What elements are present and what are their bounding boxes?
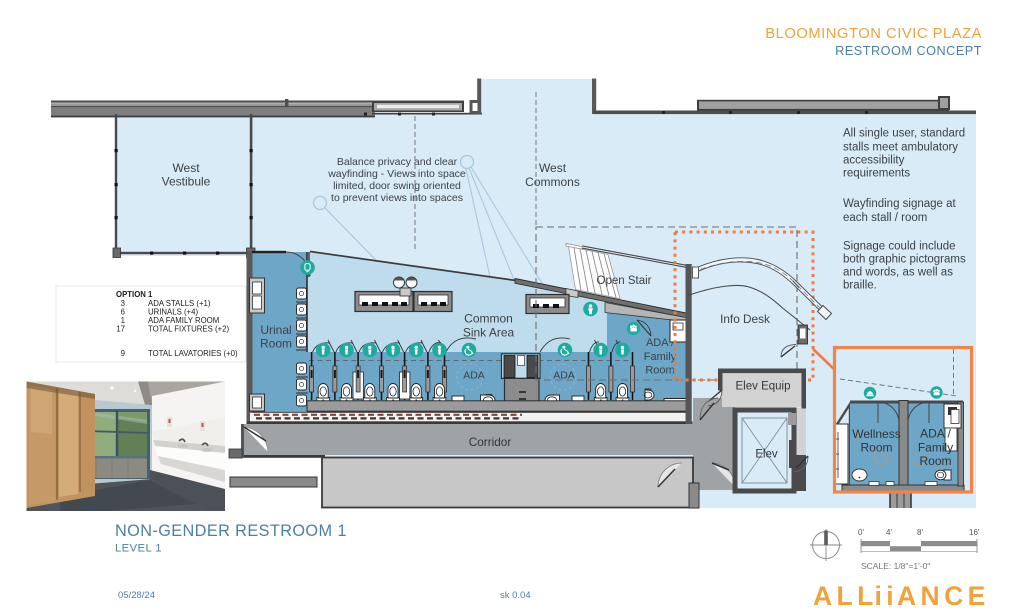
svg-text:requirements: requirements	[843, 168, 910, 180]
svg-text:8': 8'	[917, 528, 923, 537]
svg-text:Room: Room	[860, 441, 892, 455]
svg-text:West: West	[172, 161, 200, 175]
svg-text:limited, door swing oriented: limited, door swing oriented	[333, 180, 461, 192]
svg-text:All single user, standard: All single user, standard	[843, 128, 965, 140]
svg-text:4': 4'	[886, 528, 892, 537]
svg-text:Info Desk: Info Desk	[720, 312, 770, 326]
svg-text:Open Stair: Open Stair	[597, 275, 652, 287]
svg-text:ADA: ADA	[463, 370, 485, 382]
svg-text:sk 0.04: sk 0.04	[500, 590, 531, 601]
svg-text:West: West	[539, 161, 567, 175]
svg-text:both graphic pictograms: both graphic pictograms	[843, 254, 966, 266]
svg-text:to prevent views into spaces: to prevent views into spaces	[331, 192, 463, 204]
svg-text:wayfinding - Views into space: wayfinding - Views into space	[327, 168, 466, 180]
svg-text:Family: Family	[644, 351, 677, 363]
svg-text:Commons: Commons	[525, 175, 580, 189]
svg-text:Family: Family	[918, 441, 953, 455]
svg-text:ADA /: ADA /	[920, 427, 951, 441]
svg-text:0': 0'	[858, 528, 864, 537]
svg-text:Corridor: Corridor	[469, 435, 512, 449]
svg-text:17: 17	[116, 325, 125, 334]
svg-text:Room: Room	[919, 454, 951, 468]
svg-text:Signage could include: Signage could include	[843, 241, 956, 253]
svg-text:TOTAL LAVATORIES (+0): TOTAL LAVATORIES (+0)	[148, 349, 238, 358]
svg-text:05/28/24: 05/28/24	[118, 590, 155, 601]
svg-text:Room: Room	[260, 337, 292, 351]
svg-text:16': 16'	[969, 528, 980, 537]
svg-text:stalls meet ambulatory: stalls meet ambulatory	[843, 142, 958, 154]
svg-text:LEVEL 1: LEVEL 1	[115, 543, 162, 555]
svg-text:Elev: Elev	[755, 449, 778, 461]
svg-text:each stall / room: each stall / room	[843, 212, 927, 224]
svg-text:TOTAL FIXTURES (+2): TOTAL FIXTURES (+2)	[148, 325, 229, 334]
svg-text:Wellness: Wellness	[852, 427, 900, 441]
svg-text:accessibility: accessibility	[843, 155, 905, 167]
svg-text:ii: ii	[875, 581, 899, 611]
svg-text:9: 9	[121, 349, 125, 358]
svg-text:ANCE: ANCE	[897, 581, 990, 611]
svg-text:braille.: braille.	[843, 280, 877, 292]
svg-text:ALL: ALL	[813, 581, 878, 611]
svg-text:Wayfinding signage at: Wayfinding signage at	[843, 198, 957, 210]
svg-text:and words, as well as: and words, as well as	[843, 267, 953, 279]
svg-text:Balance privacy and clear: Balance privacy and clear	[337, 156, 458, 168]
svg-text:NON-GENDER RESTROOM 1: NON-GENDER RESTROOM 1	[115, 522, 347, 540]
svg-text:Room: Room	[645, 365, 674, 377]
svg-text:Sink Area: Sink Area	[463, 326, 515, 340]
svg-text:Common: Common	[464, 312, 513, 326]
svg-text:Vestibule: Vestibule	[162, 175, 211, 189]
svg-text:OPTION 1: OPTION 1	[116, 290, 153, 299]
svg-text:RESTROOM CONCEPT: RESTROOM CONCEPT	[835, 44, 982, 58]
svg-text:BLOOMINGTON CIVIC PLAZA: BLOOMINGTON CIVIC PLAZA	[765, 26, 982, 42]
svg-text:SCALE: 1/8"=1'-0": SCALE: 1/8"=1'-0"	[861, 561, 930, 571]
svg-text:Urinal: Urinal	[260, 323, 291, 337]
svg-text:Elev Equip: Elev Equip	[736, 381, 791, 393]
